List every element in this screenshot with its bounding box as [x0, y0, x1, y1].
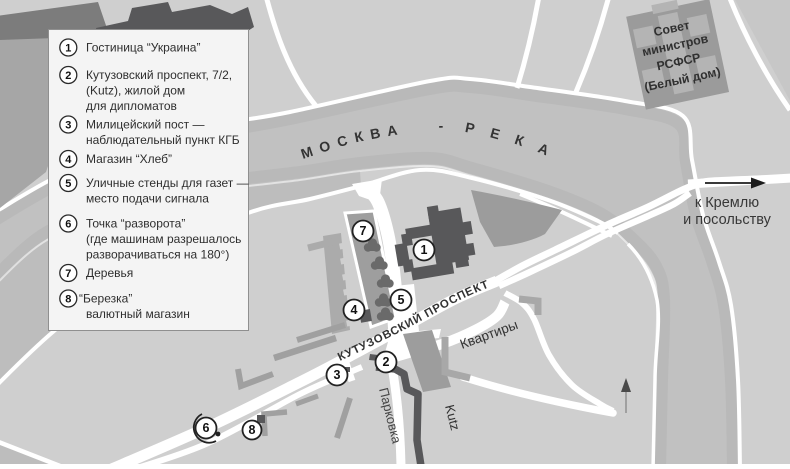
svg-text:1: 1 [65, 43, 71, 55]
svg-text:6: 6 [203, 421, 210, 435]
svg-text:7: 7 [360, 224, 367, 238]
svg-text:Гостиница “Украина”: Гостиница “Украина” [86, 41, 200, 55]
svg-text:3: 3 [65, 120, 71, 132]
svg-text:Кутузовский проспект, 7/2,: Кутузовский проспект, 7/2, [86, 68, 232, 82]
svg-text:для дипломатов: для дипломатов [86, 99, 177, 113]
svg-text:6: 6 [65, 219, 71, 231]
svg-text:5: 5 [398, 293, 405, 307]
svg-text:валютный магазин: валютный магазин [86, 307, 190, 321]
svg-text:3: 3 [334, 368, 341, 382]
svg-text:8: 8 [249, 423, 256, 437]
svg-text:8: 8 [65, 294, 71, 306]
svg-text:(Kutz), жилой дом: (Kutz), жилой дом [86, 84, 185, 98]
svg-text:-: - [439, 117, 444, 133]
svg-text:2: 2 [65, 70, 71, 82]
svg-text:Точка “разворота”: Точка “разворота” [86, 217, 185, 231]
svg-text:“Березка”: “Березка” [79, 292, 132, 306]
svg-text:4: 4 [65, 154, 72, 166]
svg-text:Деревья: Деревья [86, 266, 133, 280]
svg-text:разворачиваться на 180°): разворачиваться на 180°) [86, 248, 229, 262]
svg-text:2: 2 [383, 355, 390, 369]
svg-text:к Кремлю: к Кремлю [695, 195, 759, 211]
svg-text:7: 7 [65, 268, 71, 280]
svg-text:Милицейский пост —: Милицейский пост — [86, 118, 205, 132]
svg-text:наблюдательный пункт КГБ: наблюдательный пункт КГБ [86, 133, 240, 147]
svg-text:и посольству: и посольству [683, 212, 771, 228]
svg-text:Магазин “Хлеб”: Магазин “Хлеб” [86, 152, 172, 166]
svg-text:(где машинам разрешалось: (где машинам разрешалось [86, 232, 241, 246]
svg-text:5: 5 [65, 178, 71, 190]
svg-text:место подачи сигнала: место подачи сигнала [86, 192, 209, 206]
svg-text:1: 1 [421, 243, 428, 257]
svg-text:4: 4 [351, 303, 358, 317]
svg-text:Уличные стенды для газет —: Уличные стенды для газет — [86, 176, 249, 190]
